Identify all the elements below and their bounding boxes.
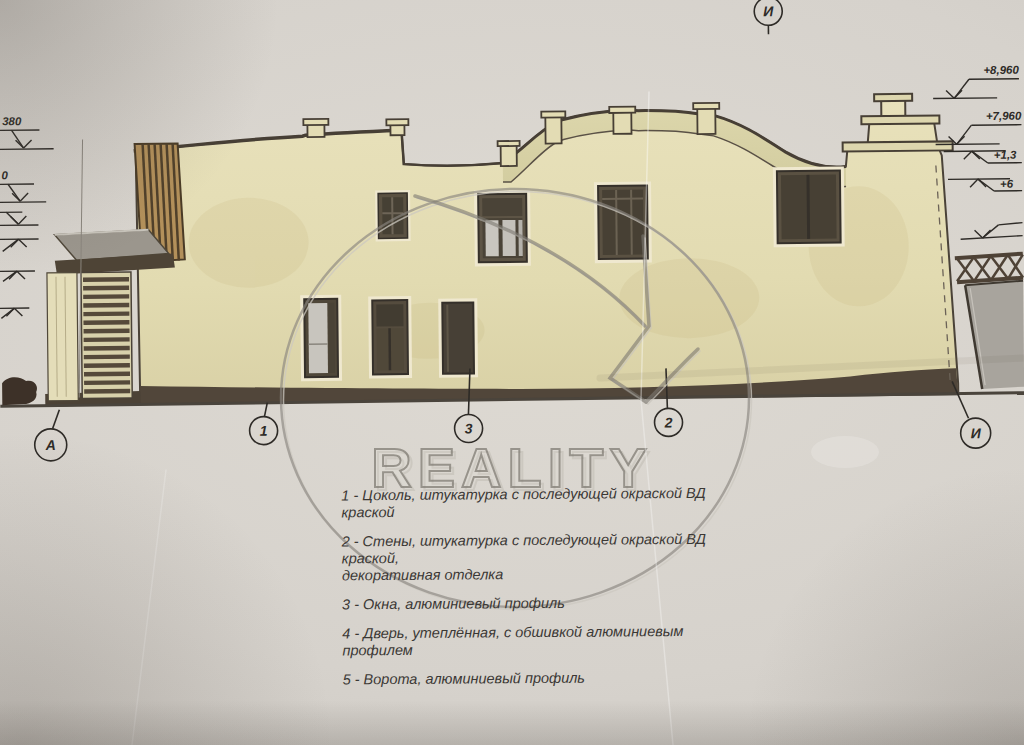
parapet-post-cap <box>609 107 635 113</box>
chimney-cap <box>386 119 408 125</box>
elevation-value: +7,960 <box>986 110 1022 122</box>
bush <box>2 377 37 405</box>
chimney-cap <box>303 119 328 125</box>
elevation-value: 380 <box>2 115 22 127</box>
roof-step-edge <box>401 129 503 166</box>
elevation-value: +8,960 <box>983 64 1019 76</box>
materials-legend: 1 - Цоколь, штукатурка с последующей окр… <box>341 485 742 701</box>
axis-letter: А <box>45 437 56 453</box>
elevation-mark <box>960 223 1022 240</box>
parapet-post-cap <box>498 141 520 146</box>
elevation-mark <box>0 212 38 225</box>
legend-item-4: 4 - Дверь, утеплённая, с обшивкой алюмин… <box>342 623 742 660</box>
gate-panel <box>965 281 1024 390</box>
louver-screen <box>81 272 132 399</box>
elevation-mark <box>0 271 35 281</box>
parapet-post <box>501 144 517 166</box>
parapet-post <box>545 115 561 143</box>
elevation-mark <box>0 308 29 318</box>
elevation-mark <box>0 130 54 150</box>
elevation-value: +1,3 <box>994 149 1017 161</box>
legend-item-2: 2 - Стены, штукатурка с последующей окра… <box>342 531 742 585</box>
elevation-mark <box>0 239 39 251</box>
fence-lattice <box>955 254 1023 283</box>
legend-item-5: 5 - Ворота, алюминиевый профиль <box>343 669 743 689</box>
axis-letter: И <box>763 3 774 19</box>
elevation-mark <box>0 184 46 203</box>
window-lower-3 <box>438 298 478 377</box>
window-upper-4 <box>773 167 845 248</box>
parapet-post <box>697 106 715 134</box>
parapet-post-cap <box>541 111 565 117</box>
legend-item-1: 1 - Цоколь, штукатурка с последующей окр… <box>341 485 741 522</box>
legend-item-3: 3 - Окна, алюминиевый профиль <box>342 594 742 614</box>
photographed-drawing: +8,960 +7,960 +1,3 +6 <box>0 0 1024 745</box>
window-lower-1 <box>300 295 342 381</box>
parapet-post-cap <box>693 103 719 109</box>
callout-number: 1 <box>260 423 268 439</box>
callout-number: 2 <box>664 414 673 430</box>
elevation-value: +6 <box>1000 178 1014 190</box>
callout-number: 3 <box>465 420 473 436</box>
elevation-value: 0 <box>1 169 8 181</box>
elevation-mark <box>933 79 1019 99</box>
window-upper-1 <box>375 190 411 241</box>
window-lower-2 <box>368 296 412 378</box>
side-wall-strip <box>47 273 78 401</box>
axis-marker-a <box>34 410 67 461</box>
axis-letter: И <box>971 425 982 441</box>
